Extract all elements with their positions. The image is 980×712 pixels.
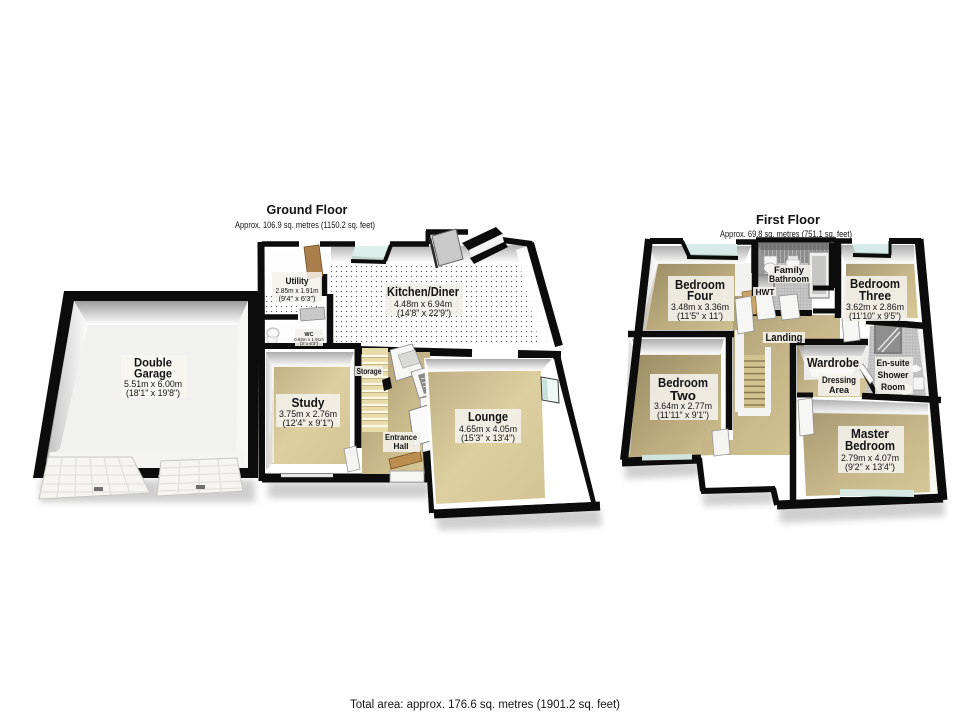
- svg-text:Kitchen/Diner: Kitchen/Diner: [387, 284, 459, 299]
- svg-text:Study: Study: [292, 395, 326, 410]
- svg-text:Hall: Hall: [394, 441, 409, 451]
- svg-text:Storage: Storage: [357, 367, 382, 376]
- svg-text:Lounge: Lounge: [468, 409, 508, 424]
- svg-text:Room: Room: [881, 382, 905, 392]
- svg-text:(9'2" x 13'4"): (9'2" x 13'4"): [845, 462, 895, 473]
- svg-text:(11'5" x 11'): (11'5" x 11'): [677, 311, 723, 322]
- svg-text:Total area: approx. 176.6 sq.: Total area: approx. 176.6 sq. metres (19…: [350, 699, 620, 711]
- svg-text:Landing: Landing: [766, 332, 803, 344]
- svg-text:Area: Area: [829, 385, 850, 395]
- svg-text:Bedroom: Bedroom: [845, 438, 895, 453]
- svg-text:First Floor: First Floor: [756, 212, 820, 227]
- svg-text:Utility: Utility: [286, 276, 309, 286]
- svg-text:(9'4" x 6'3"): (9'4" x 6'3"): [279, 294, 316, 303]
- svg-text:(12'4" x 9'1"): (12'4" x 9'1"): [283, 418, 334, 429]
- svg-text:Three: Three: [859, 288, 891, 303]
- svg-text:Shower: Shower: [878, 370, 909, 380]
- svg-text:HWT: HWT: [756, 287, 776, 297]
- svg-text:Wardrobe: Wardrobe: [807, 356, 859, 370]
- svg-text:Bathroom: Bathroom: [769, 274, 809, 284]
- svg-text:(14'8" x 22'9"): (14'8" x 22'9"): [397, 308, 451, 319]
- svg-text:Dressing: Dressing: [822, 375, 856, 385]
- svg-text:(11'10" x 9'5"): (11'10" x 9'5"): [849, 311, 901, 322]
- svg-text:(18'1" x 19'8"): (18'1" x 19'8"): [126, 388, 180, 398]
- svg-text:(3' x 6'3"): (3' x 6'3"): [300, 341, 319, 346]
- svg-text:Four: Four: [687, 288, 713, 303]
- svg-text:Ground Floor: Ground Floor: [267, 202, 348, 217]
- svg-text:(11'11" x 9'1"): (11'11" x 9'1"): [657, 410, 709, 421]
- svg-text:(15'3" x 13'4"): (15'3" x 13'4"): [461, 433, 515, 444]
- svg-text:Approx. 106.9 sq. metres (1150: Approx. 106.9 sq. metres (1150.2 sq. fee…: [235, 220, 375, 231]
- svg-text:Approx. 69.8 sq. metres (751.1: Approx. 69.8 sq. metres (751.1 sq. feet): [720, 229, 852, 240]
- svg-text:En-suite: En-suite: [877, 358, 910, 368]
